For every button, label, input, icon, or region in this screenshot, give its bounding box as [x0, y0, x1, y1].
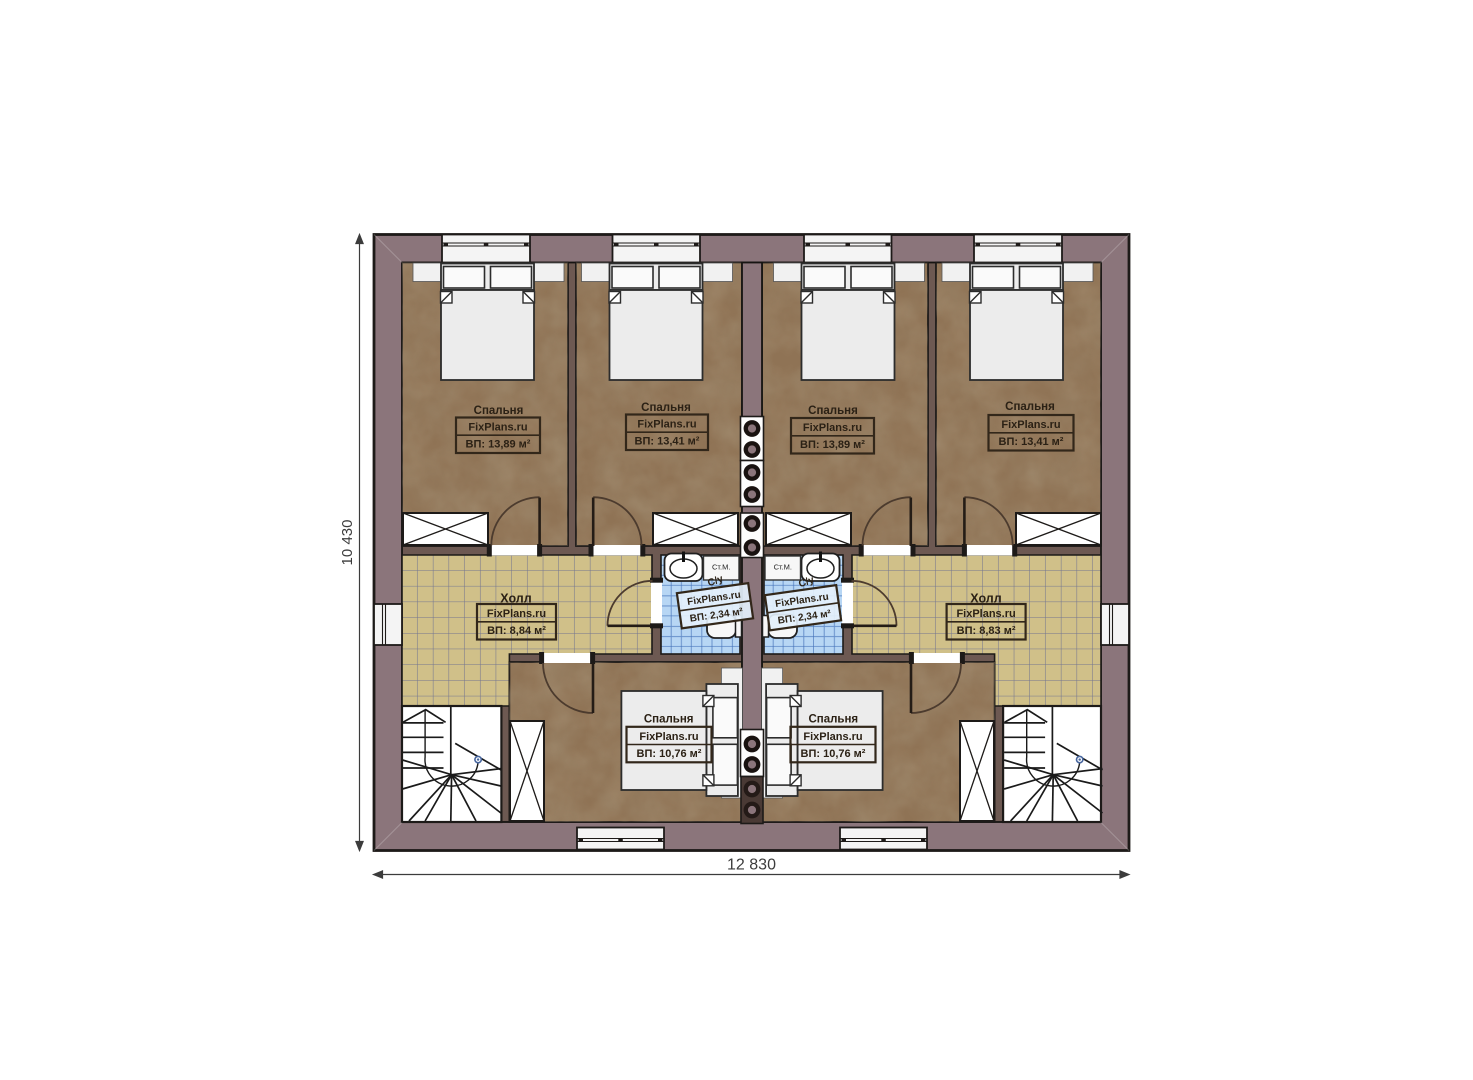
svg-text:ВП: 13,41 м²: ВП: 13,41 м² [635, 436, 700, 448]
svg-text:10 430: 10 430 [339, 520, 356, 566]
svg-text:Спальня: Спальня [641, 402, 691, 414]
svg-text:Ст.М.: Ст.М. [774, 563, 792, 572]
svg-text:FixPlans.ru: FixPlans.ru [803, 422, 862, 434]
svg-text:12 830: 12 830 [727, 857, 776, 874]
svg-text:Спальня: Спальня [644, 714, 694, 726]
svg-text:ВП: 10,76 м²: ВП: 10,76 м² [801, 748, 866, 760]
svg-text:FixPlans.ru: FixPlans.ru [639, 731, 698, 743]
svg-text:ВП: 13,89 м²: ВП: 13,89 м² [800, 439, 865, 451]
svg-text:Ст.М.: Ст.М. [712, 563, 730, 572]
svg-text:ВП: 8,84 м²: ВП: 8,84 м² [487, 625, 546, 637]
svg-text:FixPlans.ru: FixPlans.ru [956, 608, 1015, 620]
svg-text:Спальня: Спальня [808, 405, 858, 417]
svg-text:Спальня: Спальня [474, 405, 524, 417]
svg-text:ВП: 13,89 м²: ВП: 13,89 м² [466, 439, 531, 451]
svg-text:Спальня: Спальня [1005, 401, 1055, 413]
svg-text:Спальня: Спальня [808, 714, 858, 726]
svg-text:FixPlans.ru: FixPlans.ru [468, 422, 527, 434]
svg-text:FixPlans.ru: FixPlans.ru [487, 608, 546, 620]
svg-text:FixPlans.ru: FixPlans.ru [803, 731, 862, 743]
svg-text:ВП: 10,76 м²: ВП: 10,76 м² [637, 748, 702, 760]
svg-text:FixPlans.ru: FixPlans.ru [1001, 419, 1060, 431]
svg-text:FixPlans.ru: FixPlans.ru [637, 419, 696, 431]
svg-text:ВП: 13,41 м²: ВП: 13,41 м² [999, 436, 1064, 448]
svg-text:ВП: 8,83 м²: ВП: 8,83 м² [957, 625, 1016, 637]
